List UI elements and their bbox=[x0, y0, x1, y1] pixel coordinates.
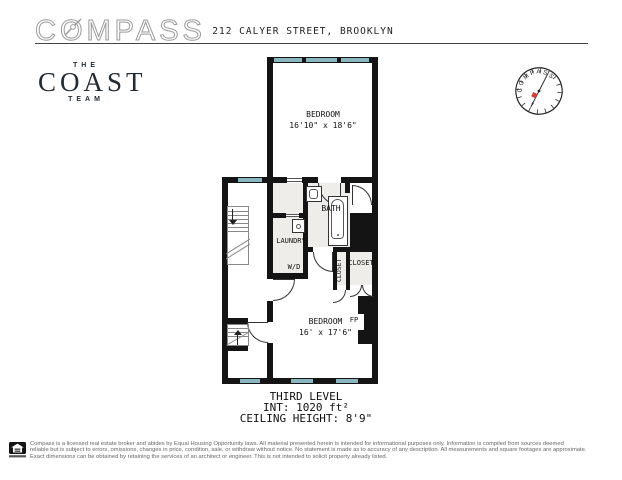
door-closet-small bbox=[333, 290, 346, 303]
bedroom2-label: BEDROOM bbox=[273, 317, 378, 326]
window-bottom-3 bbox=[336, 378, 358, 384]
bathtub-drain bbox=[337, 234, 339, 236]
window-top-2 bbox=[306, 57, 337, 63]
window-left bbox=[238, 177, 262, 183]
level-info: THIRD LEVEL INT: 1020 ft² CEILING HEIGHT… bbox=[206, 391, 406, 424]
stair-up-arrow-head bbox=[234, 330, 242, 335]
window-top-1 bbox=[274, 57, 302, 63]
closet-large-label: CLOSET bbox=[348, 259, 374, 268]
cased-opening-br1 bbox=[287, 178, 302, 182]
wall-closet-divider bbox=[346, 252, 350, 285]
stair-up-arrow-stem bbox=[237, 334, 238, 345]
bath-sink-basin bbox=[309, 189, 318, 199]
wd-label: W/D bbox=[283, 263, 305, 272]
wall-br1-bottom-a bbox=[273, 177, 287, 183]
chimney-block bbox=[350, 213, 372, 252]
floorplan-page: COMPASS 212 CALYER STREET, BROOKLYN THE … bbox=[0, 0, 622, 480]
cased-opening-laundry bbox=[286, 214, 299, 217]
wall-vestibule-stub bbox=[345, 183, 350, 193]
window-bottom-2 bbox=[291, 378, 313, 384]
wall-hall-right-upper bbox=[267, 183, 273, 273]
door-br2-entry bbox=[273, 279, 295, 301]
disclaimer-line-2: reliable but is subject to errors, omiss… bbox=[30, 447, 612, 453]
wall-laundry-top-a bbox=[273, 213, 286, 218]
compass-rose-icon: COMPASS bbox=[510, 62, 568, 120]
property-address: 212 CALYER STREET, BROOKLYN bbox=[198, 26, 408, 37]
coast-logo-name: COAST bbox=[38, 69, 134, 96]
legal-disclaimer: Compass is a licensed real estate broker… bbox=[30, 441, 612, 460]
washer-door-circle bbox=[296, 224, 301, 229]
wall-hall-right-lower bbox=[267, 343, 273, 384]
stair-down-arrow-head bbox=[229, 220, 237, 225]
coast-team-logo: THE COAST TEAM bbox=[38, 62, 134, 103]
door-vestibule bbox=[352, 185, 372, 205]
header-divider bbox=[35, 43, 588, 44]
bedroom1-dimensions: 16'10" x 18'6" bbox=[273, 121, 373, 130]
window-bottom-1 bbox=[240, 378, 260, 384]
door-hall bbox=[247, 322, 268, 343]
disclaimer-line-3: Exact dimensions can be obtained by reta… bbox=[30, 454, 612, 460]
wall-bath-bottom-a bbox=[303, 247, 313, 252]
bath-label: BATH bbox=[311, 204, 351, 213]
bedroom1-label: BEDROOM bbox=[273, 110, 373, 119]
window-top-3 bbox=[341, 57, 369, 63]
laundry-label: LAUNDRY bbox=[271, 237, 311, 246]
level-ceiling: CEILING HEIGHT: 8'9" bbox=[206, 413, 406, 424]
wall-br1-left bbox=[267, 57, 273, 183]
equal-housing-icon bbox=[8, 441, 27, 458]
door-bath-br2 bbox=[313, 252, 333, 272]
bedroom2-dimensions: 16' x 17'6" bbox=[273, 328, 378, 337]
coast-logo-team: TEAM bbox=[38, 96, 134, 103]
closet-small-label: CLOSET bbox=[335, 253, 343, 287]
stair-down-arrow-stem bbox=[232, 209, 233, 220]
wall-lower-stair-bottom bbox=[222, 346, 248, 351]
